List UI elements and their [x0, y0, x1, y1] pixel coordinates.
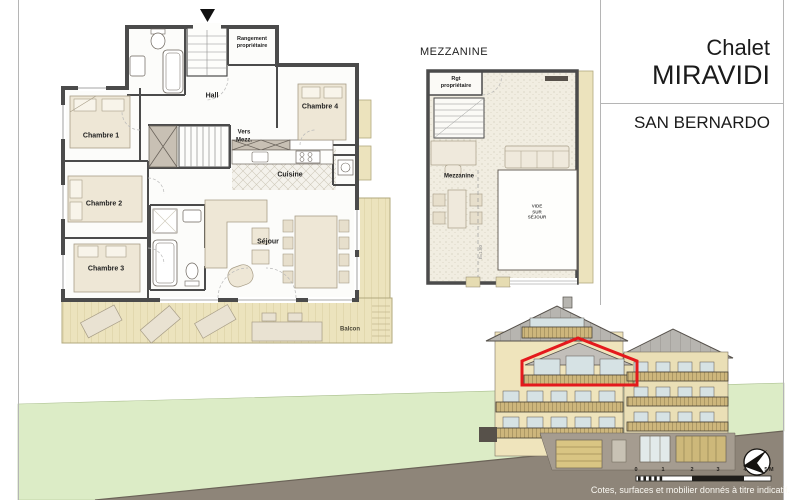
scale-bar: [636, 476, 771, 481]
room-label-balcon: Balcon: [340, 326, 360, 334]
room-label-rangement: Rangement propriétaire: [237, 36, 268, 50]
project-title: Chalet MIRAVIDI: [652, 36, 770, 91]
room-label-chambre3: Chambre 3: [88, 266, 124, 275]
entrance-arrow-icon: [200, 9, 215, 22]
room-label-rgt-proprietaire: Rgt propriétaire: [441, 76, 472, 90]
scale-label-0: 0: [634, 467, 637, 473]
titleblock-divider-horizontal: [600, 103, 783, 104]
project-title-line1: Chalet: [652, 36, 770, 60]
room-label-cuisine: Cuisine: [277, 172, 302, 181]
scale-label-5m: 5 M: [764, 467, 773, 473]
scale-label-4: 4: [743, 467, 746, 473]
room-label-chambre1: Chambre 1: [83, 133, 119, 142]
room-label-sejour: Séjour: [257, 239, 279, 248]
titleblock-divider-vertical: [600, 0, 601, 305]
height-note-label: h=1.80: [478, 245, 484, 259]
room-label-chambre2: Chambre 2: [86, 201, 122, 210]
page-border-left: [18, 0, 19, 500]
room-label-chambre4: Chambre 4: [302, 104, 338, 113]
mezzanine-title: MEZZANINE: [420, 46, 488, 58]
project-title-line2: MIRAVIDI: [652, 60, 770, 91]
room-label-vide-sur-sejour: VIDE SUR SÉJOUR: [528, 204, 547, 221]
plan-sheet: Chalet MIRAVIDI SAN BERNARDO Chambre 1 C…: [0, 0, 800, 500]
scale-label-3: 3: [716, 467, 719, 473]
room-label-vers-mezz: Vers Mezz.: [236, 130, 252, 145]
page-border-right: [783, 0, 784, 500]
room-label-mezzanine: Mezzanine: [444, 173, 474, 181]
building-elevation: [479, 297, 735, 470]
scale-label-2: 2: [690, 467, 693, 473]
disclaimer-note: Cotes, surfaces et mobilier donnés à tit…: [591, 485, 790, 495]
scale-label-1: 1: [661, 467, 664, 473]
main-floor-plan: [60, 9, 392, 343]
project-location: SAN BERNARDO: [634, 113, 770, 133]
room-label-hall: Hall: [206, 93, 219, 102]
